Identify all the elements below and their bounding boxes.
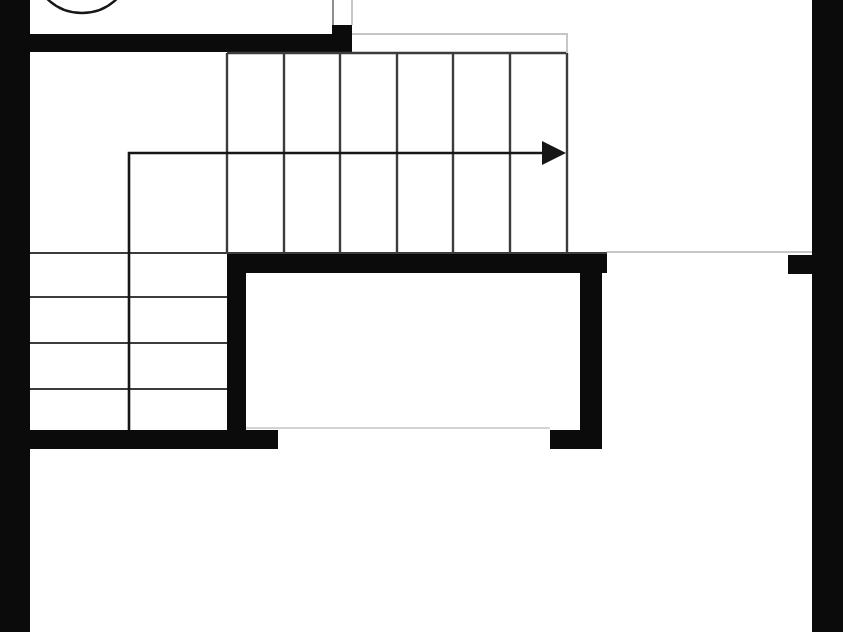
wall-exterior-left [0, 0, 30, 632]
wall-right-door-tab [788, 255, 812, 274]
floor-plan-canvas [0, 0, 843, 632]
wall-room-top [227, 254, 607, 273]
wall-top-end-pier [332, 25, 352, 53]
door-swing-circle [32, 0, 132, 13]
wall-room-left [227, 254, 246, 431]
floor-plan [0, 0, 843, 632]
stair-direction-arrow-head [542, 141, 566, 165]
wall-bottom-left [0, 430, 278, 449]
wall-top [0, 34, 352, 52]
wall-room-bottom-right-stub [550, 430, 602, 449]
wall-room-right [580, 254, 602, 449]
wall-exterior-right [812, 0, 843, 632]
